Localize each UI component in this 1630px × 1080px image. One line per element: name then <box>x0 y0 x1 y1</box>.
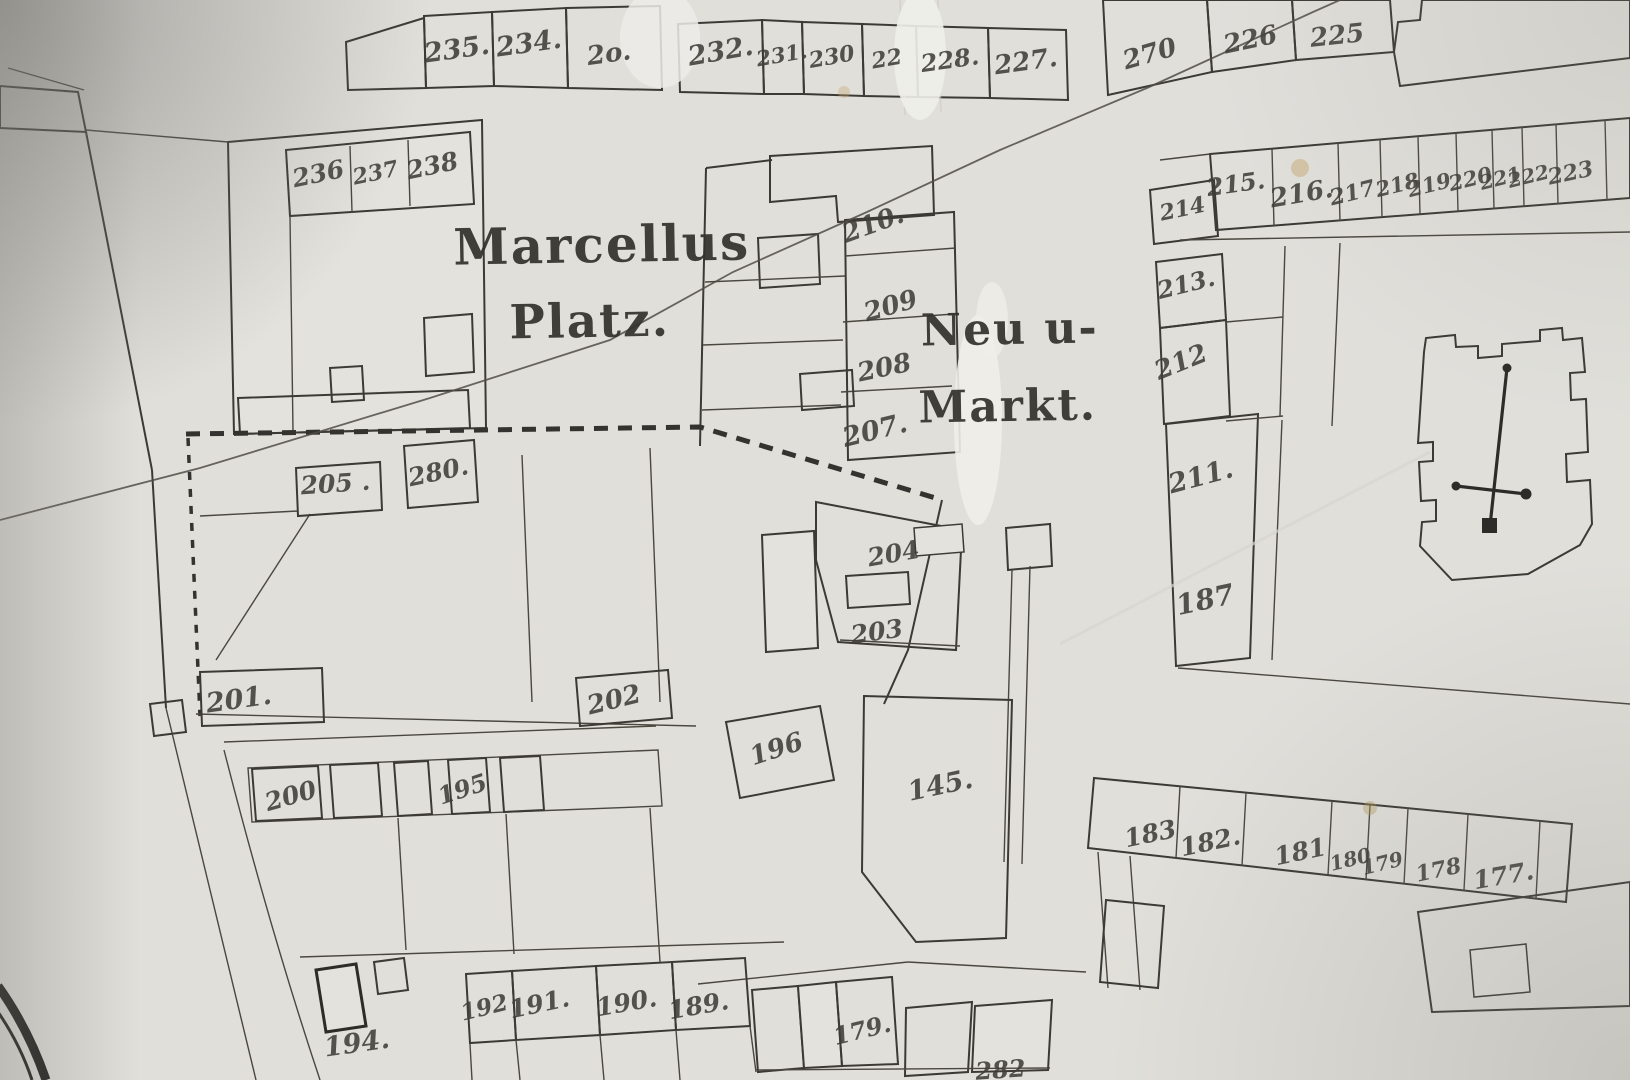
photo-vignette <box>0 0 1630 1080</box>
historical-cadastral-map: MarcellusPlatz.Neu u-Markt. 235.234.2o.2… <box>0 0 1630 1080</box>
map-geometry <box>0 0 1630 1080</box>
map-photo: MarcellusPlatz.Neu u-Markt. 235.234.2o.2… <box>0 0 1630 1080</box>
